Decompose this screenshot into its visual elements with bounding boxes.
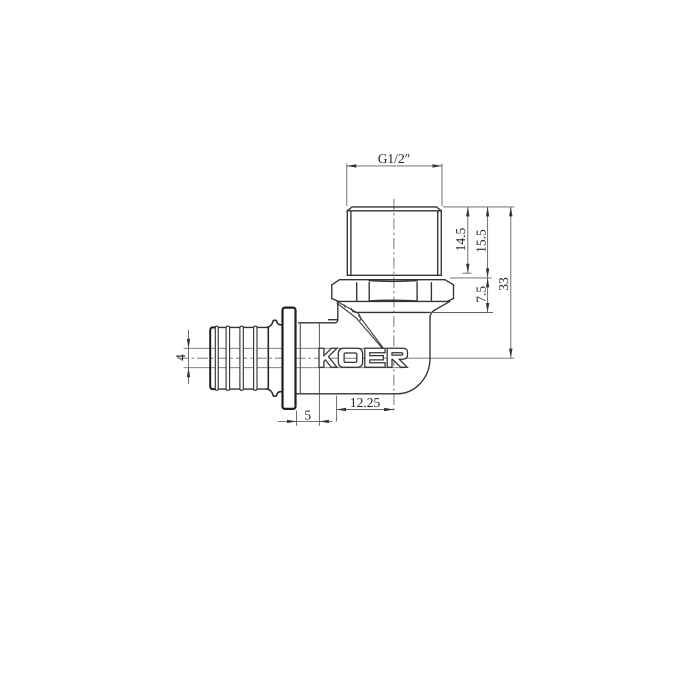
svg-text:G1/2″: G1/2″ — [378, 151, 411, 166]
svg-text:7.5: 7.5 — [473, 286, 488, 303]
svg-text:4: 4 — [173, 354, 188, 361]
svg-text:12.25: 12.25 — [350, 395, 381, 410]
svg-text:33: 33 — [496, 277, 511, 291]
svg-text:14.5: 14.5 — [453, 227, 468, 251]
svg-text:15.5: 15.5 — [474, 229, 489, 253]
svg-text:5: 5 — [304, 408, 311, 423]
